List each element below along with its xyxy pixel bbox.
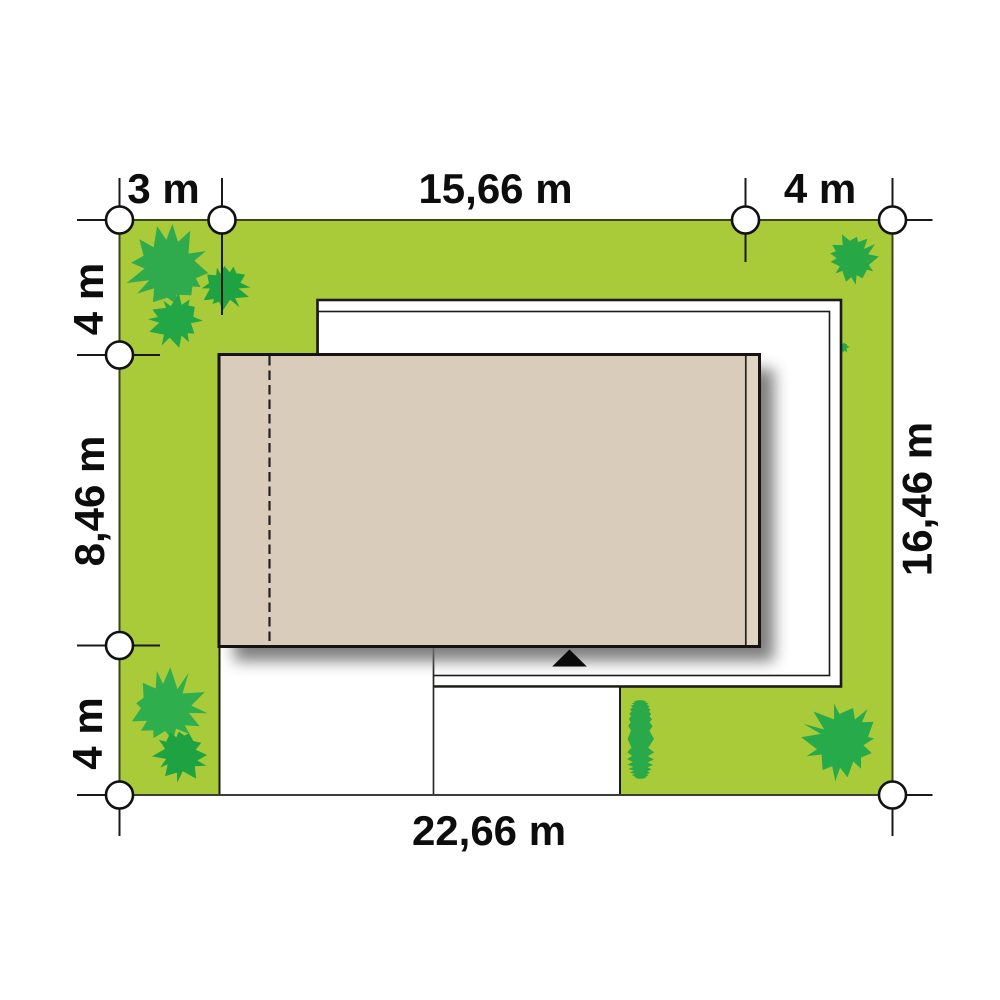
svg-text:4 m: 4 m [64,697,111,769]
svg-text:15,66 m: 15,66 m [418,165,572,212]
svg-text:4 m: 4 m [65,263,112,335]
svg-text:16,46 m: 16,46 m [894,422,941,576]
svg-text:3 m: 3 m [127,165,199,212]
svg-text:4 m: 4 m [784,165,856,212]
svg-text:22,66 m: 22,66 m [412,807,566,854]
svg-text:8,46 m: 8,46 m [66,436,113,567]
